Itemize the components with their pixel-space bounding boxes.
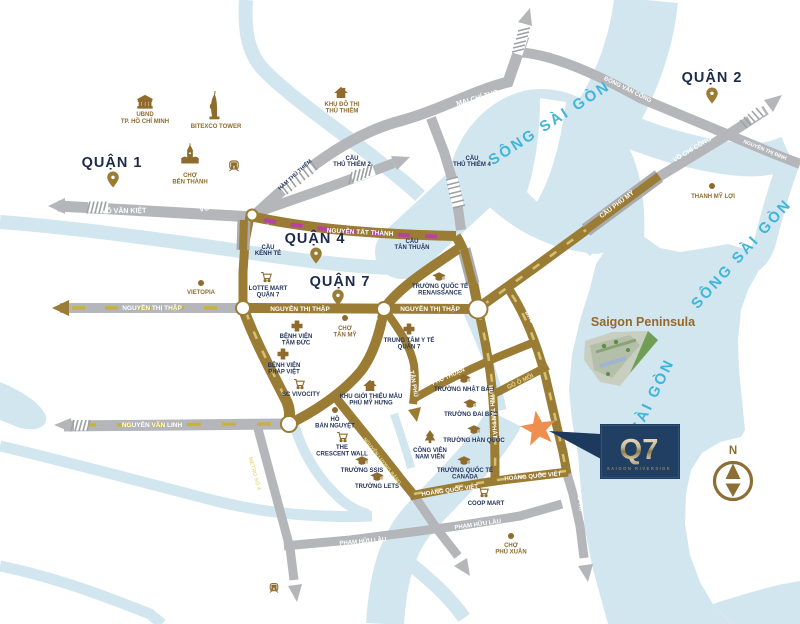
- svg-text:TÂN MỸ: TÂN MỸ: [334, 331, 357, 338]
- svg-text:THE: THE: [336, 445, 348, 451]
- svg-text:Q7: Q7: [620, 434, 659, 466]
- svg-text:TRƯỜNG NHẬT BẢN: TRƯỜNG NHẬT BẢN: [434, 385, 494, 393]
- svg-text:TRƯỜNG QUỐC TẾ: TRƯỜNG QUỐC TẾ: [412, 282, 468, 290]
- svg-text:HỒ: HỒ: [331, 416, 340, 423]
- svg-text:TRƯỜNG LETS: TRƯỜNG LETS: [355, 482, 399, 490]
- svg-text:CẦU: CẦU: [406, 238, 419, 245]
- svg-text:BỆNH VIỆN: BỆNH VIỆN: [268, 361, 301, 369]
- svg-text:TP. HỒ CHÍ MINH: TP. HỒ CHÍ MINH: [121, 117, 169, 125]
- svg-text:VIETOPIA: VIETOPIA: [187, 290, 216, 296]
- svg-text:BỆNH VIỆN: BỆNH VIỆN: [280, 332, 313, 340]
- svg-text:PHÚ MỸ HƯNG: PHÚ MỸ HƯNG: [349, 399, 393, 406]
- svg-text:CÔNG VIÊN: CÔNG VIÊN: [413, 446, 447, 454]
- svg-text:NGUYỄN THỊ THẬP: NGUYỄN THỊ THẬP: [270, 304, 330, 313]
- svg-text:N: N: [729, 445, 737, 457]
- svg-text:QUẬN 2: QUẬN 2: [682, 68, 743, 86]
- svg-text:BẾN THÀNH: BẾN THÀNH: [172, 178, 207, 185]
- svg-text:QUẬN 7: QUẬN 7: [257, 291, 280, 298]
- svg-text:CẦU: CẦU: [262, 244, 275, 251]
- svg-text:THỦ THIÊM 2: THỦ THIÊM 2: [333, 160, 371, 168]
- svg-text:Saigon Peninsula: Saigon Peninsula: [591, 315, 696, 329]
- svg-text:CRESCENT WALL: CRESCENT WALL: [316, 451, 368, 457]
- svg-text:PHÚ XUÂN: PHÚ XUÂN: [495, 548, 526, 555]
- svg-text:COOP MART: COOP MART: [468, 501, 505, 507]
- svg-text:NGUYỄN THỊ THẬP: NGUYỄN THỊ THẬP: [400, 304, 460, 313]
- svg-text:CẦU: CẦU: [346, 155, 359, 162]
- svg-text:THỦ THIÊM 4: THỦ THIÊM 4: [453, 160, 491, 168]
- svg-text:KÊNH TẺ: KÊNH TẺ: [255, 249, 281, 257]
- svg-text:TÂN THUẬN: TÂN THUẬN: [395, 244, 430, 251]
- svg-text:QUẬN 7: QUẬN 7: [310, 272, 371, 290]
- svg-text:QUẬN 7: QUẬN 7: [398, 343, 421, 350]
- svg-text:THỦ THIÊM: THỦ THIÊM: [326, 106, 359, 114]
- svg-text:CẦU: CẦU: [466, 155, 479, 162]
- svg-text:NAM VIÊN: NAM VIÊN: [415, 452, 444, 460]
- svg-text:NGUYỄN VĂN LINH: NGUYỄN VĂN LINH: [122, 420, 183, 429]
- svg-text:LOTTE MART: LOTTE MART: [249, 286, 288, 292]
- svg-text:CHỢ: CHỢ: [183, 173, 198, 179]
- svg-text:SC VIVOCITY: SC VIVOCITY: [282, 392, 320, 398]
- svg-text:CHỢ: CHỢ: [504, 543, 519, 549]
- svg-text:SAIGON RIVERSIDE: SAIGON RIVERSIDE: [607, 466, 671, 471]
- svg-text:TRUNG TÂM Y TẾ: TRUNG TÂM Y TẾ: [384, 337, 435, 344]
- svg-text:THANH MỸ LỢI: THANH MỸ LỢI: [691, 193, 735, 200]
- svg-text:BÁN NGUYỆT: BÁN NGUYỆT: [315, 421, 355, 429]
- svg-text:TRƯỜNG QUỐC TẾ: TRƯỜNG QUỐC TẾ: [437, 466, 493, 474]
- svg-text:RENAISSANCE: RENAISSANCE: [418, 290, 462, 296]
- svg-text:BITEXCO TOWER: BITEXCO TOWER: [191, 124, 242, 130]
- svg-text:NGUYỄN THỊ THẬP: NGUYỄN THỊ THẬP: [122, 303, 182, 312]
- svg-text:CANADA: CANADA: [452, 474, 479, 480]
- svg-text:QUẬN 1: QUẬN 1: [82, 153, 143, 171]
- svg-text:CHỢ: CHỢ: [338, 326, 353, 332]
- svg-text:PHÁP VIỆT: PHÁP VIỆT: [268, 367, 300, 375]
- svg-text:KHU GIỚI THIỆU MẪU: KHU GIỚI THIỆU MẪU: [340, 392, 403, 400]
- svg-text:TÂM ĐỨC: TÂM ĐỨC: [282, 339, 311, 346]
- svg-text:KHU ĐÔ THỊ: KHU ĐÔ THỊ: [325, 100, 360, 108]
- svg-text:UBND: UBND: [136, 112, 154, 118]
